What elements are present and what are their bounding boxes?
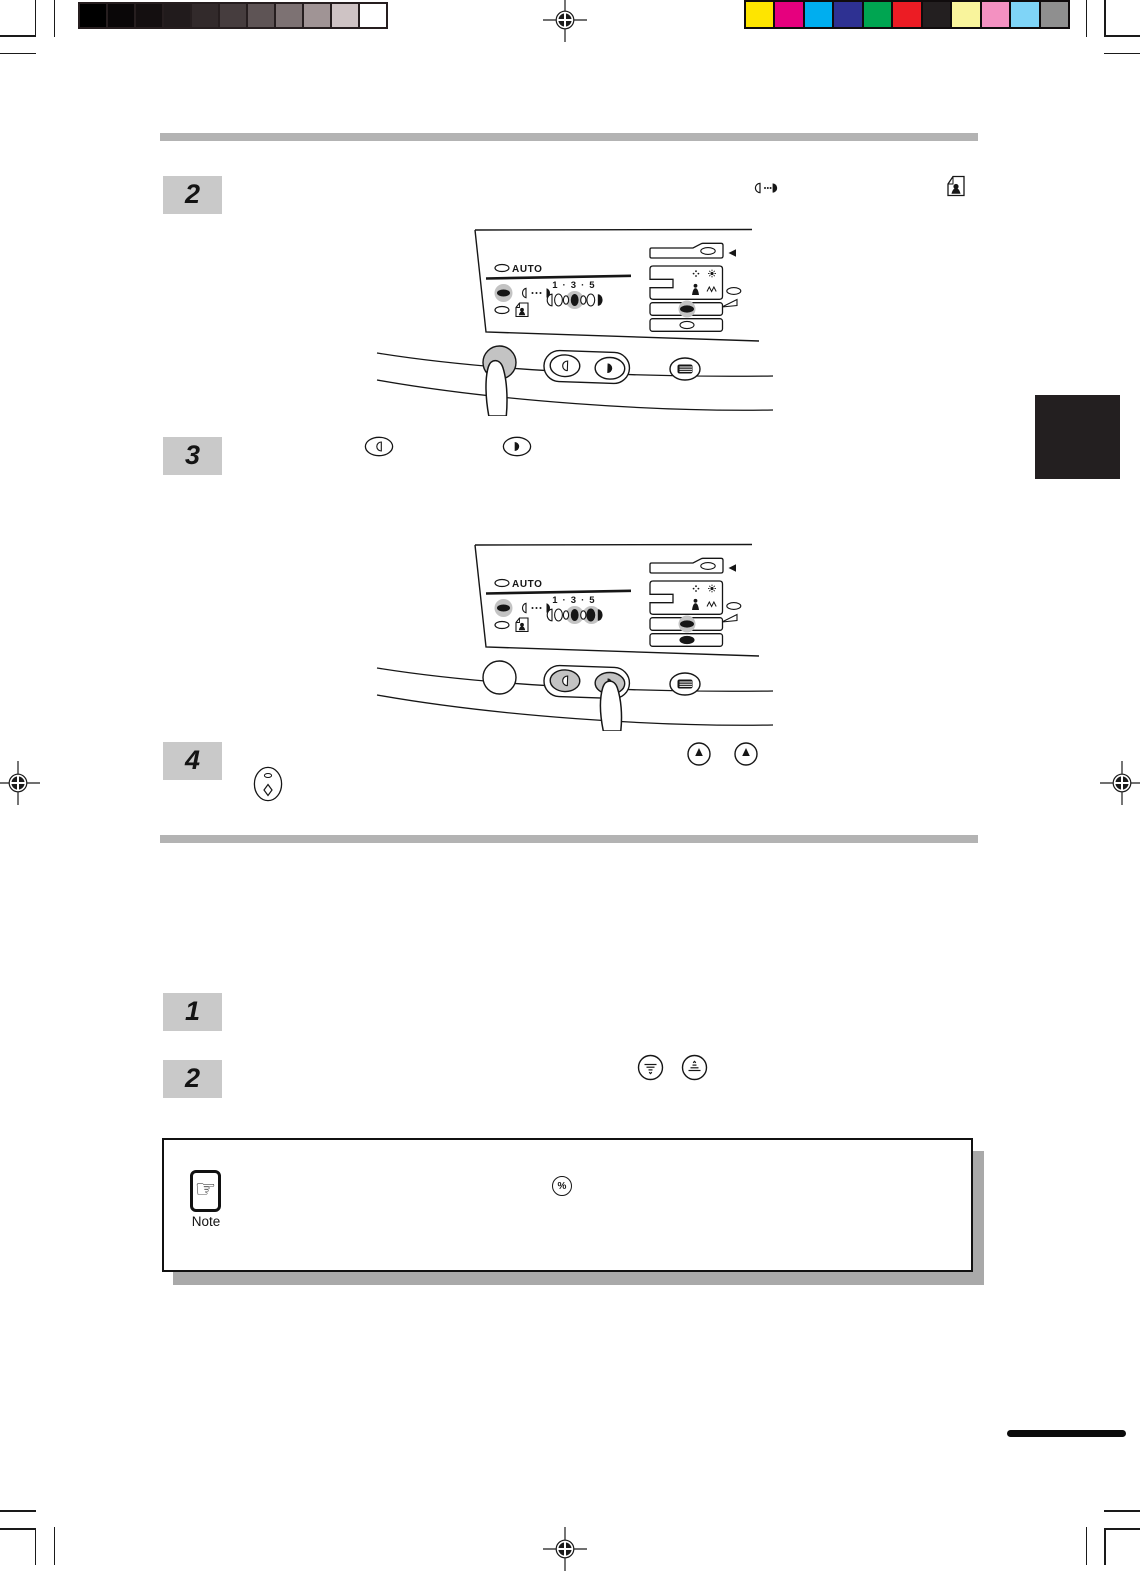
note-hand-icon: ☞: [190, 1170, 221, 1212]
calibration-swatch: [982, 2, 1009, 27]
crop-mark-line: [1104, 0, 1106, 36]
manual-exposure-icon: [753, 181, 779, 195]
crop-mark-line: [35, 1528, 37, 1565]
exposure-scale-label: 1 · 3 · 5: [552, 595, 596, 606]
page-footer-rule: [1007, 1430, 1126, 1437]
note-box: ☞ Note %: [162, 1138, 973, 1272]
crop-mark-line: [0, 1528, 36, 1530]
left-arrow-marker: [729, 564, 737, 572]
calibration-swatch: [746, 2, 773, 27]
photo-mode-icon: [516, 303, 528, 317]
side-lamp: [727, 288, 741, 295]
crop-mark-line: [1104, 1528, 1106, 1565]
color-calibration-strip: [744, 0, 1070, 29]
start-key-icon: [253, 766, 283, 802]
copy-mode-key-column: [650, 558, 741, 646]
registration-target: [543, 1527, 587, 1571]
step-number-2: 2: [163, 176, 222, 214]
note-label: Note: [178, 1214, 234, 1229]
step-number-3: 3: [163, 437, 222, 475]
step-number-1: 1: [163, 993, 222, 1031]
crop-mark-line: [1104, 1510, 1140, 1512]
darken-key-icon: [502, 436, 532, 457]
calibration-swatch: [805, 2, 832, 27]
calibration-swatch: [923, 2, 950, 27]
calibration-swatch: [136, 4, 162, 27]
pressing-finger: [486, 361, 507, 416]
left-arrow-marker: [729, 249, 737, 257]
exposure-mode-select-key: [483, 661, 516, 694]
calibration-swatch: [192, 4, 218, 27]
crop-mark-line: [1104, 35, 1140, 37]
section-divider: [160, 835, 978, 843]
calibration-swatch: [360, 4, 386, 27]
manual-exposure-icon: [522, 603, 550, 612]
percent-glyph: %: [558, 1181, 567, 1192]
calibration-swatch: [332, 4, 358, 27]
grayscale-calibration-strip: [78, 2, 388, 29]
copy-density-key: [670, 673, 700, 695]
tray-wedge: [722, 615, 737, 623]
exposure-up-key-icon: [734, 742, 758, 766]
crop-mark-line: [0, 1510, 36, 1512]
step-number-2b: 2: [163, 1060, 222, 1098]
registration-target: [1100, 761, 1140, 805]
section-tab: [1035, 395, 1120, 479]
registration-target: [543, 0, 587, 42]
side-lamp: [727, 603, 741, 610]
calibration-swatch: [952, 2, 979, 27]
exposure-scale-label: 1 · 3 · 5: [552, 280, 596, 291]
tray-wedge: [722, 300, 737, 308]
calibration-swatch: [164, 4, 190, 27]
calibration-swatch: [893, 2, 920, 27]
step-number-4: 4: [163, 742, 222, 780]
calibration-swatch: [775, 2, 802, 27]
zoom-down-key-icon: [637, 1054, 664, 1081]
calibration-swatch: [1011, 2, 1038, 27]
registration-target: [0, 761, 40, 805]
control-panel-illustration-exposure-select: AUTO 1 · 3 · 5: [376, 226, 774, 416]
exposure-scale: [547, 291, 602, 309]
crop-mark-line: [54, 0, 56, 37]
auto-label: AUTO: [512, 579, 543, 590]
calibration-swatch: [108, 4, 134, 27]
manual-mode-lamp: [497, 290, 510, 297]
crop-mark-line: [0, 53, 36, 55]
crop-mark-line: [54, 1527, 56, 1565]
photo-mode-icon: [516, 618, 528, 632]
calibration-swatch: [248, 4, 274, 27]
auto-indicator-lamp: [495, 265, 509, 272]
crop-mark-line: [1086, 0, 1088, 37]
calibration-swatch: [276, 4, 302, 27]
lighten-key-icon: [364, 436, 394, 457]
manual-exposure-icon: [522, 288, 550, 297]
section-divider: [160, 133, 978, 141]
panel-separator-bar: [486, 276, 631, 279]
zoom-up-key-icon: [681, 1054, 708, 1081]
calibration-swatch: [1041, 2, 1068, 27]
exposure-up-key-icon: [687, 742, 711, 766]
auto-indicator-lamp: [495, 580, 509, 587]
step-number-label: 2: [185, 179, 200, 210]
auto-label: AUTO: [512, 264, 543, 275]
calibration-swatch: [864, 2, 891, 27]
step-number-label: 2: [185, 1063, 200, 1094]
calibration-swatch: [304, 4, 330, 27]
crop-mark-line: [1104, 1528, 1140, 1530]
photo-mode-icon: [946, 175, 966, 197]
calibration-swatch: [220, 4, 246, 27]
crop-mark-line: [35, 0, 37, 36]
photo-mode-lamp: [495, 307, 509, 314]
lighten-darken-key-group: [543, 350, 630, 384]
step-number-label: 3: [185, 440, 200, 471]
panel-separator-bar: [486, 591, 631, 594]
percent-key-icon: %: [552, 1176, 572, 1196]
copy-mode-key-column: [650, 243, 741, 331]
pressing-finger: [600, 681, 621, 731]
photo-mode-lamp: [495, 622, 509, 629]
crop-mark-line: [1086, 1527, 1088, 1565]
crop-mark-line: [0, 35, 36, 37]
manual-mode-lamp: [497, 605, 510, 612]
copy-density-key: [670, 358, 700, 380]
exposure-scale: [547, 606, 602, 624]
calibration-swatch: [834, 2, 861, 27]
step-number-label: 1: [185, 996, 200, 1027]
control-panel-illustration-darken: AUTO 1 · 3 · 5: [376, 541, 774, 731]
crop-mark-line: [1104, 53, 1140, 55]
step-number-label: 4: [185, 745, 200, 776]
pointing-hand-glyph: ☞: [195, 1178, 217, 1202]
calibration-swatch: [80, 4, 106, 27]
